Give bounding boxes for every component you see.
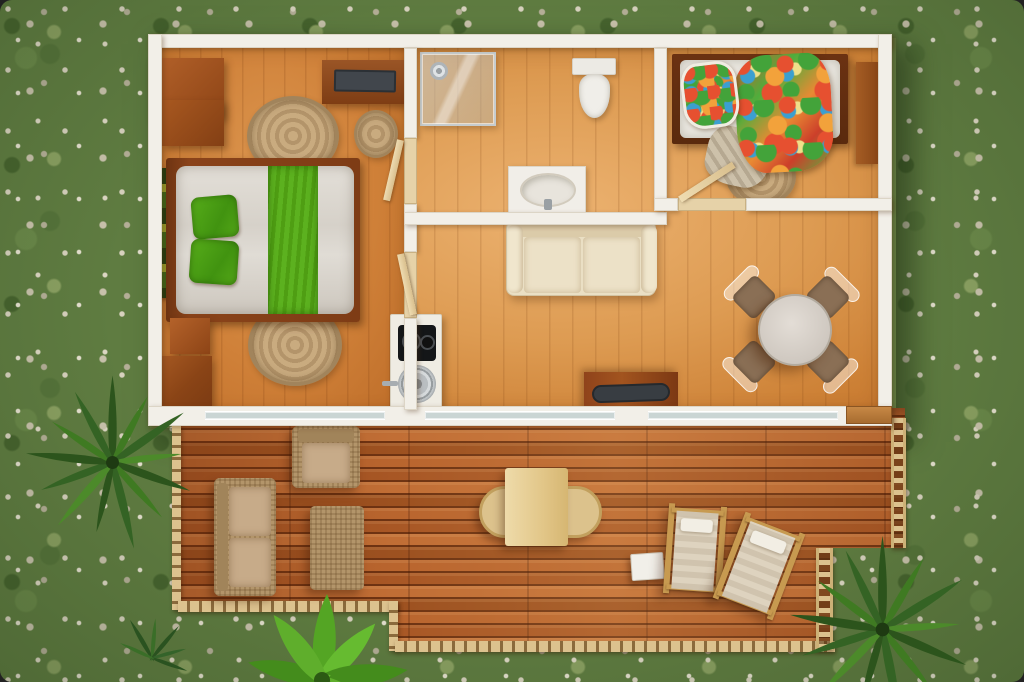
outdoor-sofa xyxy=(214,478,276,596)
sliding-glass-door xyxy=(205,411,385,420)
double-bed xyxy=(166,158,360,322)
wood-threshold xyxy=(846,406,892,424)
palm-plant-left xyxy=(20,370,205,555)
tv xyxy=(592,383,671,404)
deck-railing-right-upper xyxy=(891,418,906,548)
living-sofa xyxy=(506,220,656,296)
sofa-cushion xyxy=(229,487,271,536)
console-screen xyxy=(334,69,396,92)
picnic-tabletop xyxy=(505,468,568,546)
kids-duvet xyxy=(733,52,835,175)
kids-pillow xyxy=(678,59,742,131)
wall-kids-living xyxy=(654,198,678,211)
fern xyxy=(112,608,192,678)
sofa-armrest xyxy=(641,225,657,293)
sliding-glass-door xyxy=(648,411,838,420)
shower-head xyxy=(430,62,448,80)
fan-palm-bottom xyxy=(222,580,422,682)
scene xyxy=(0,0,1024,682)
bed-runner xyxy=(268,166,318,314)
armchair-back xyxy=(298,429,354,442)
wall-west xyxy=(148,34,162,426)
side-table xyxy=(630,552,665,581)
wall-bathroom-living xyxy=(404,212,667,225)
wall-bedroom xyxy=(404,318,417,410)
wall-north xyxy=(148,34,892,48)
threshold xyxy=(404,138,417,204)
media-console xyxy=(322,60,406,104)
lounger-headrest xyxy=(680,518,713,533)
sofa-seat-cushion xyxy=(583,237,640,293)
wardrobe xyxy=(162,100,224,146)
wicker-ottoman xyxy=(310,506,364,590)
rattan-stool xyxy=(354,110,398,158)
wall-bedroom xyxy=(404,48,417,138)
wall-kids-living xyxy=(746,198,892,211)
faucet xyxy=(382,381,398,386)
green-pillow xyxy=(189,238,240,285)
sofa-armrest xyxy=(507,225,523,293)
threshold xyxy=(678,198,746,211)
dining-table xyxy=(758,294,832,366)
sliding-glass-door xyxy=(425,411,615,420)
wall-east xyxy=(878,34,892,426)
armchair-cushion xyxy=(302,443,350,483)
wall-bathroom-kids xyxy=(654,48,667,204)
shower-cabin xyxy=(420,52,496,126)
outdoor-armchair xyxy=(292,426,360,488)
nightstand xyxy=(170,318,210,354)
sofa-back xyxy=(217,483,228,591)
palm-plant-right xyxy=(785,532,980,682)
wall-ledge xyxy=(856,62,878,164)
sofa-seat-cushion xyxy=(524,237,581,293)
faucet xyxy=(544,199,552,210)
washbasin xyxy=(508,166,586,214)
deck-railing-bottom-right xyxy=(395,641,835,652)
green-pillow xyxy=(190,194,239,240)
toilet-tank xyxy=(572,58,616,75)
